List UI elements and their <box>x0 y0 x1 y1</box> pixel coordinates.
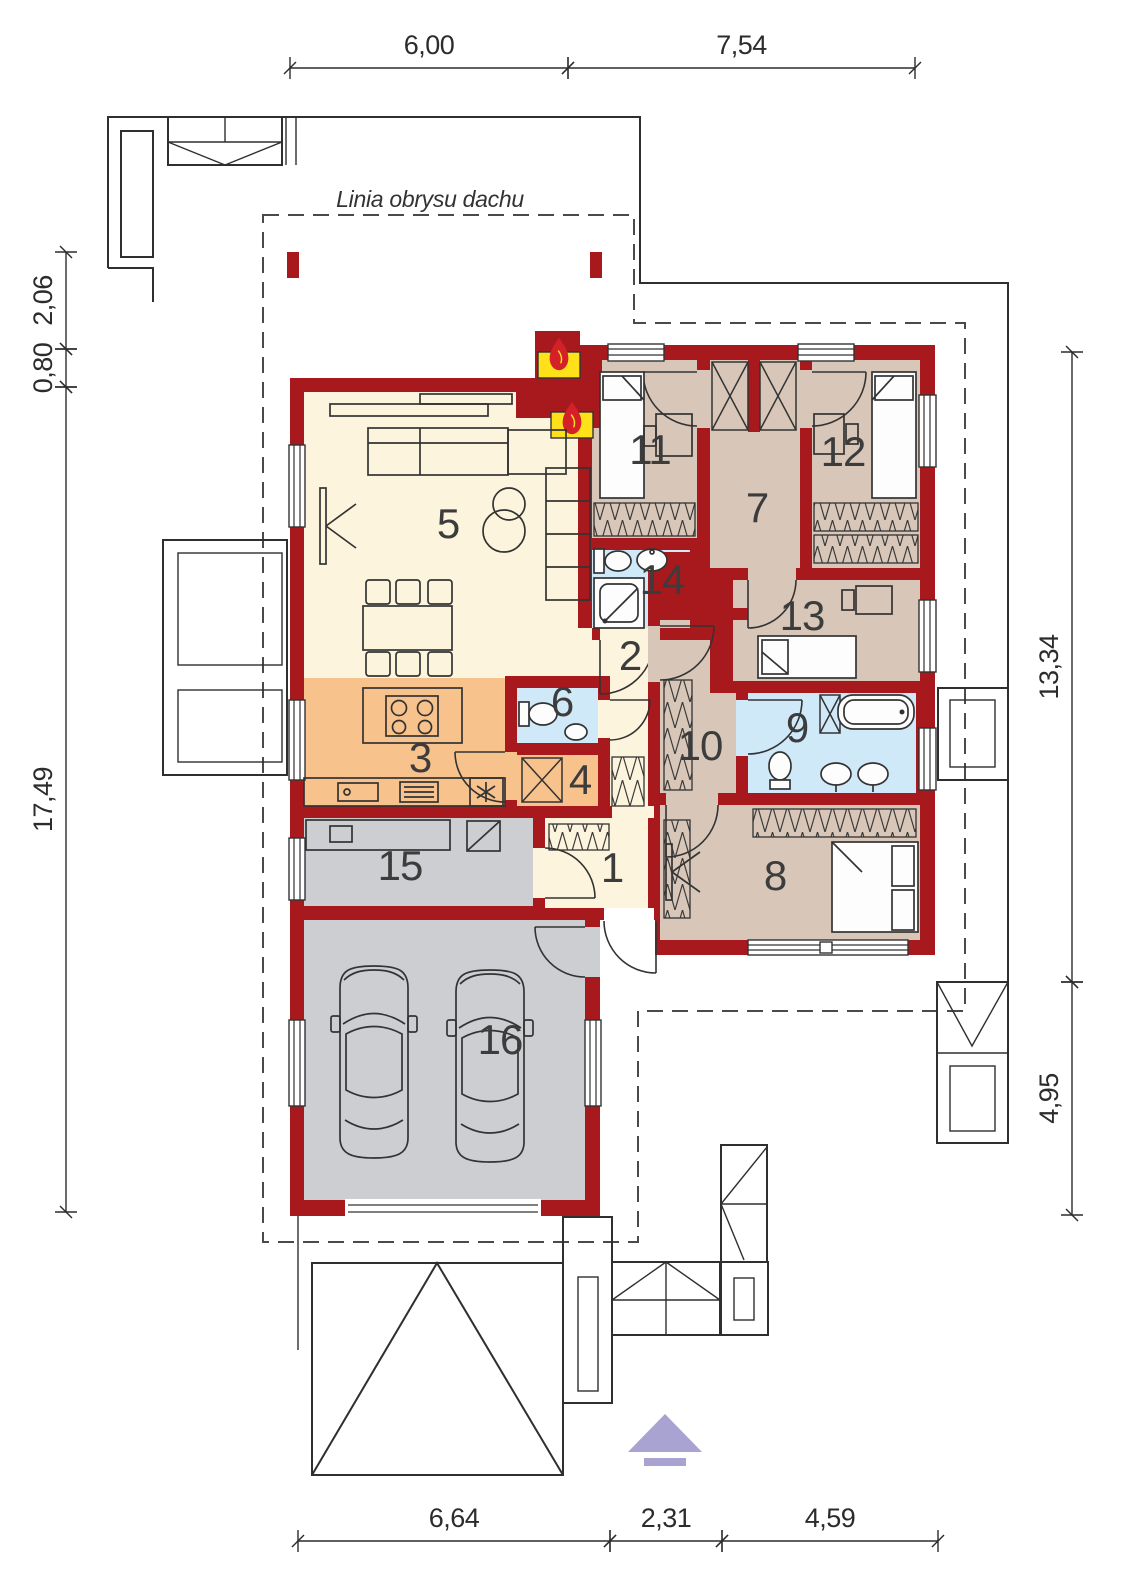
room-number-10: 10 <box>678 722 723 769</box>
window <box>919 728 936 790</box>
room-number-15: 15 <box>378 842 423 889</box>
floor-plan-drawing: Linia obrysu dachu 6,007,546,642,314,592… <box>0 0 1125 1596</box>
room-number-3: 3 <box>409 734 431 781</box>
window <box>919 395 936 467</box>
window <box>289 700 305 780</box>
room-number-12: 12 <box>821 428 866 475</box>
porch-column-left <box>563 1217 612 1403</box>
room-number-1: 1 <box>601 844 623 891</box>
bed-room12 <box>872 372 916 498</box>
room-number-2: 2 <box>619 632 641 679</box>
room-number-4: 4 <box>569 756 592 803</box>
roof-outline-label: Linia obrysu dachu <box>336 186 524 212</box>
window <box>585 1020 601 1106</box>
porch-post-right <box>590 252 602 278</box>
room-number-8: 8 <box>764 852 786 899</box>
left-terrace-pillar <box>163 540 287 775</box>
room-number-11: 11 <box>629 426 671 473</box>
dimension-label: 7,54 <box>716 30 767 60</box>
window <box>798 344 854 361</box>
southeast-terrace-pillar <box>937 982 1008 1143</box>
window <box>289 445 305 527</box>
corner-sink-wc6 <box>565 724 587 740</box>
floor-plan-canvas: Linia obrysu dachu 6,007,546,642,314,592… <box>0 0 1125 1596</box>
window <box>919 600 936 672</box>
room-number-14: 14 <box>640 556 685 603</box>
direction-marker <box>628 1414 702 1466</box>
main-entrance-door <box>604 921 656 973</box>
room-number-6: 6 <box>551 678 573 725</box>
garage-front-gable <box>298 1216 563 1475</box>
bathtub <box>838 695 914 729</box>
room-number-7: 7 <box>746 484 768 531</box>
entrance-walkway-column <box>721 1145 767 1262</box>
dimension-label: 6,00 <box>404 30 455 60</box>
dimension-label: 13,34 <box>1034 634 1064 700</box>
dimension-label: 6,64 <box>429 1503 480 1533</box>
porch-column-right <box>721 1262 768 1335</box>
room-number-13: 13 <box>780 592 825 639</box>
dimension-label: 4,59 <box>805 1503 856 1533</box>
shower-bath14 <box>594 578 644 628</box>
garage-door-opening <box>345 1199 541 1217</box>
dimension-label: 2,31 <box>641 1503 692 1533</box>
dimension-label: 0,80 <box>28 343 58 394</box>
toilet-bath14 <box>594 549 631 573</box>
dimension-label: 17,49 <box>28 767 58 832</box>
dimension-label: 4,95 <box>1034 1073 1064 1124</box>
porch-post-left <box>287 252 299 278</box>
bed-room13 <box>758 636 856 678</box>
dimension-label: 2,06 <box>28 275 58 326</box>
entrance-porch-roof <box>612 1262 720 1335</box>
room-number-5: 5 <box>437 500 459 547</box>
window <box>608 344 664 361</box>
window <box>289 1020 305 1106</box>
room-number-9: 9 <box>786 704 808 751</box>
porch-roof-ridge-marks <box>168 117 296 165</box>
room-number-16: 16 <box>478 1016 523 1063</box>
right-terrace-pillar <box>938 688 1008 780</box>
window <box>289 838 305 900</box>
toilet-bath9 <box>769 752 791 789</box>
terrace-sliding-door <box>748 940 908 955</box>
double-bed-room8 <box>832 842 918 932</box>
